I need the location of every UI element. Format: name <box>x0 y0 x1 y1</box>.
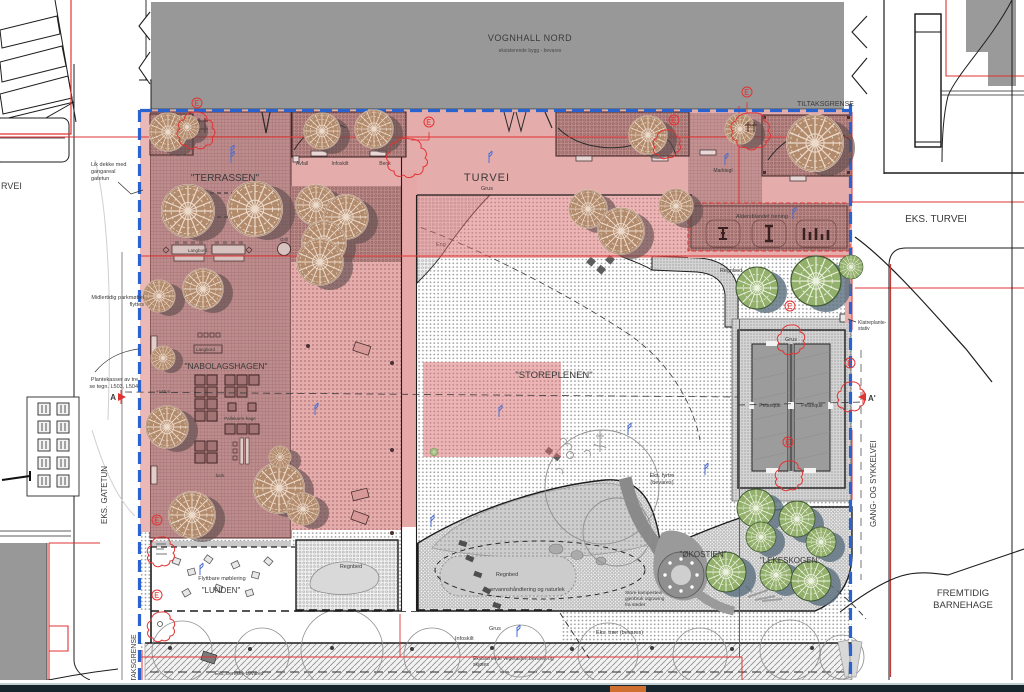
svg-text:Flyttbare møblering: Flyttbare møblering <box>198 576 245 582</box>
svg-text:EKS. TURVEI: EKS. TURVEI <box>905 214 967 225</box>
svg-text:stativ: stativ <box>858 326 870 332</box>
svg-text:VOGNHALL NORD: VOGNHALL NORD <box>488 33 572 43</box>
svg-text:Lik dekke med: Lik dekke med <box>91 162 126 168</box>
svg-text:TILTAKSGRENSE: TILTAKSGRENSE <box>797 101 854 108</box>
svg-text:Langbord: Langbord <box>196 347 216 352</box>
svg-text:Langbord: Langbord <box>188 248 208 253</box>
svg-text:skjøtes: skjøtes <box>473 662 489 668</box>
svg-text:Eks. fyrtre: Eks. fyrtre <box>650 473 675 479</box>
svg-text:eksisterende bygg - bevares: eksisterende bygg - bevares <box>499 48 562 54</box>
svg-text:LTAKSGRENSE: LTAKSGRENSE <box>131 634 138 685</box>
svg-text:se tegn. L503, L504: se tegn. L503, L504 <box>89 384 138 390</box>
svg-text:Overvannshåndtering og naturle: Overvannshåndtering og naturlek <box>483 586 565 593</box>
svg-text:Grus: Grus <box>785 337 797 343</box>
svg-text:EKS. GATETUN: EKS. GATETUN <box>100 466 109 524</box>
svg-text:Regnbed: Regnbed <box>496 572 518 578</box>
svg-text:A': A' <box>868 394 876 403</box>
svg-text:Petanque: Petanque <box>801 403 823 409</box>
svg-text:Grus: Grus <box>489 626 501 632</box>
svg-text:Regnbed: Regnbed <box>340 564 362 570</box>
svg-text:Infoskilt: Infoskilt <box>455 636 474 642</box>
svg-text:"ØKOSTIEN": "ØKOSTIEN" <box>679 550 726 559</box>
svg-text:Eks. trær (bevares): Eks. trær (bevares) <box>596 630 643 636</box>
svg-text:"LUNDEN": "LUNDEN" <box>202 586 241 595</box>
svg-text:BARNEHAGE: BARNEHAGE <box>933 600 993 611</box>
svg-text:Regnbed: Regnbed <box>720 268 742 274</box>
svg-text:(bevares): (bevares) <box>650 480 673 486</box>
svg-text:Aldersblandet trening: Aldersblandet trening <box>736 214 788 220</box>
svg-text:gatetun: gatetun <box>91 176 109 182</box>
svg-text:Grus: Grus <box>481 186 493 192</box>
svg-text:Avfall: Avfall <box>296 161 308 167</box>
svg-text:fra stedet: fra stedet <box>625 602 646 608</box>
svg-text:flyttes: flyttes <box>130 302 145 308</box>
svg-text:Eks. trerekke bevares: Eks. trerekke bevares <box>215 671 264 677</box>
svg-text:Plantekasser av tre: Plantekasser av tre <box>91 377 138 383</box>
svg-text:gjenbruk utgraving: gjenbruk utgraving <box>625 596 665 602</box>
svg-text:+145,5: +145,5 <box>156 389 170 394</box>
svg-text:Grill: Grill <box>280 237 288 242</box>
svg-text:RVEI: RVEI <box>1 181 22 191</box>
svg-text:Infoskilt: Infoskilt <box>332 161 350 167</box>
svg-text:Store kampestein: Store kampestein <box>625 590 663 596</box>
svg-text:"NABOLAGSHAGEN": "NABOLAGSHAGEN" <box>184 361 267 371</box>
svg-text:TURVEI: TURVEI <box>464 172 510 184</box>
svg-text:bark: bark <box>216 473 226 478</box>
svg-text:"LEKESKOGEN": "LEKESKOGEN" <box>760 556 821 565</box>
svg-text:Midlertidig parkmøbel: Midlertidig parkmøbel <box>91 295 144 301</box>
svg-text:Pallekarm-hage: Pallekarm-hage <box>224 416 256 421</box>
svg-text:FREMTIDIG: FREMTIDIG <box>937 588 989 599</box>
svg-text:gangareal: gangareal <box>91 169 115 175</box>
svg-text:Marktegl: Marktegl <box>713 168 732 174</box>
svg-text:GANG- OG SYKKELVEI: GANG- OG SYKKELVEI <box>869 440 878 527</box>
svg-text:A: A <box>110 393 116 402</box>
svg-text:"STOREPLENEN": "STOREPLENEN" <box>515 370 592 381</box>
